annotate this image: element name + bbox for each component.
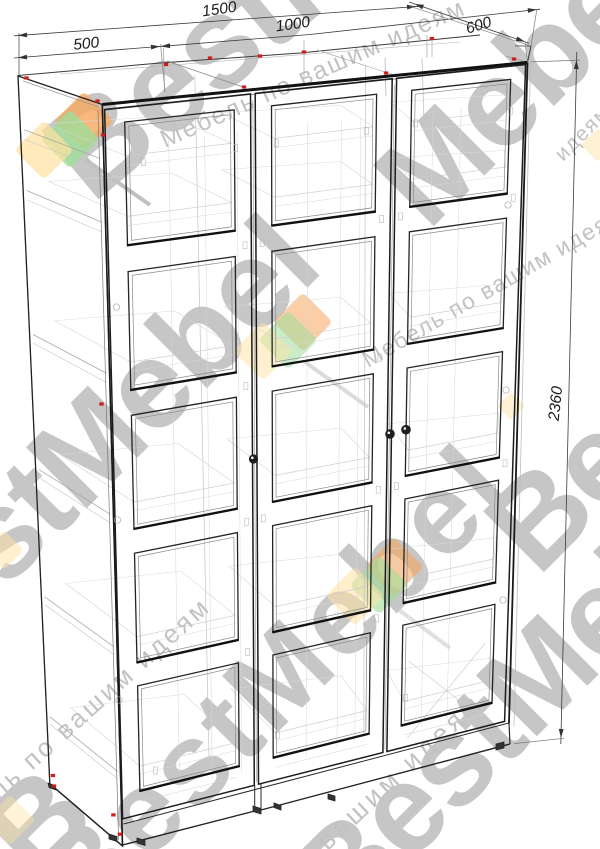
svg-text:500: 500 — [72, 34, 100, 54]
